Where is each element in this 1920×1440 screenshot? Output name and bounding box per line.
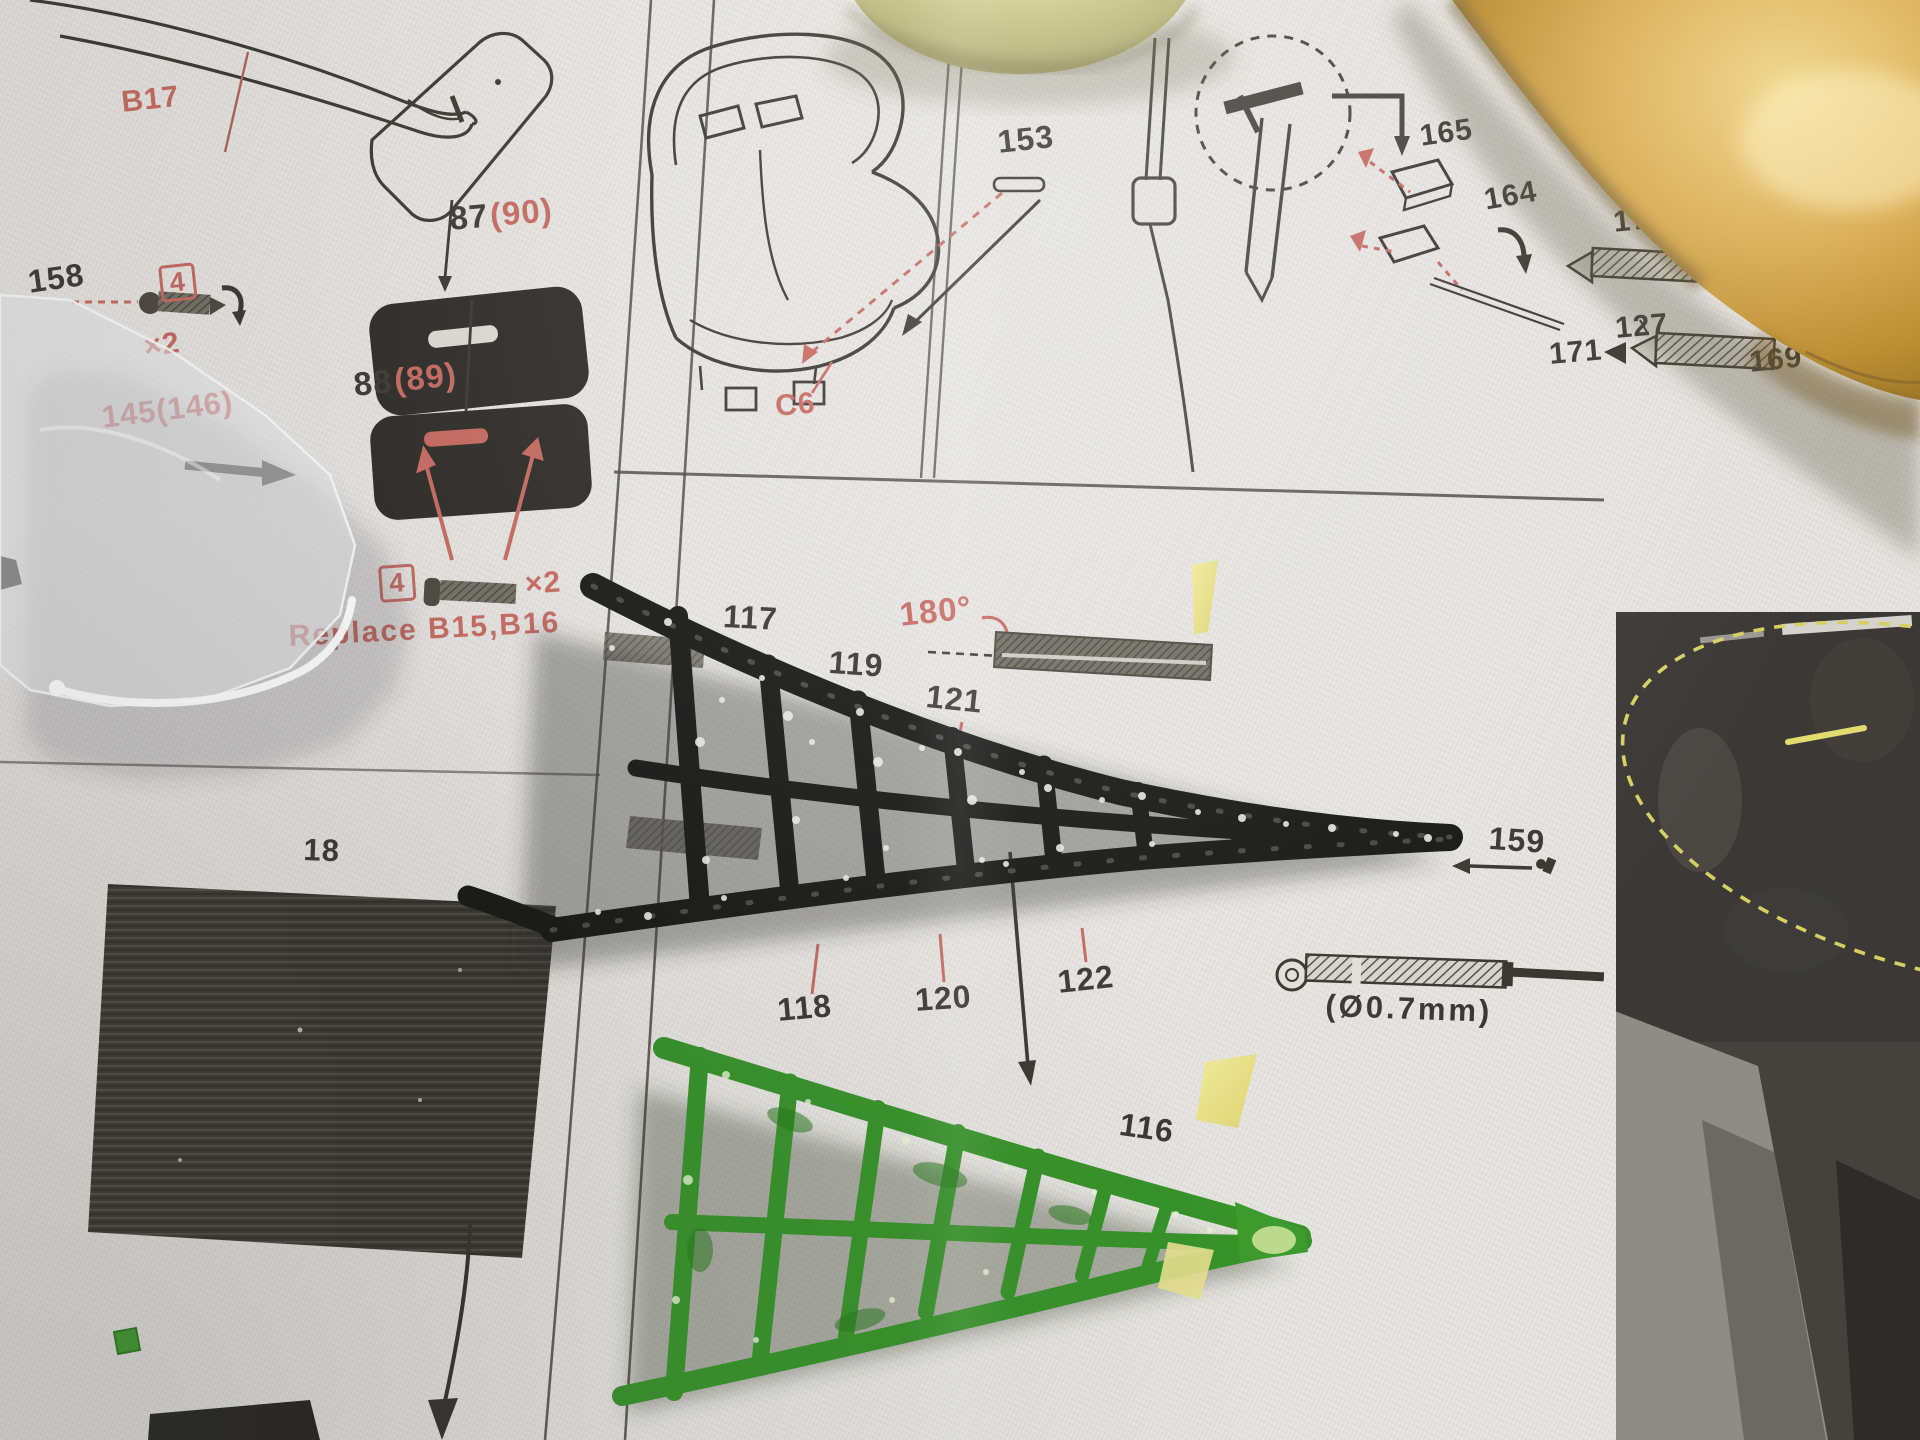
specular-highlight [49,680,65,696]
physical-objects-layer [0,0,1920,1440]
clear-plastic-part [0,295,411,780]
photographed-instruction-sheet: B17 158 4 ×2 87(90) 88(89) 145(146) 4 ×2… [0,0,1920,1440]
green-paint-speck [114,1328,140,1354]
yellow-dome-object [825,0,1235,106]
black-lattice-part [468,586,1450,971]
tape-piece-top [1192,560,1218,634]
tape-piece-middle [1196,1054,1257,1128]
amber-object [1392,0,1920,560]
